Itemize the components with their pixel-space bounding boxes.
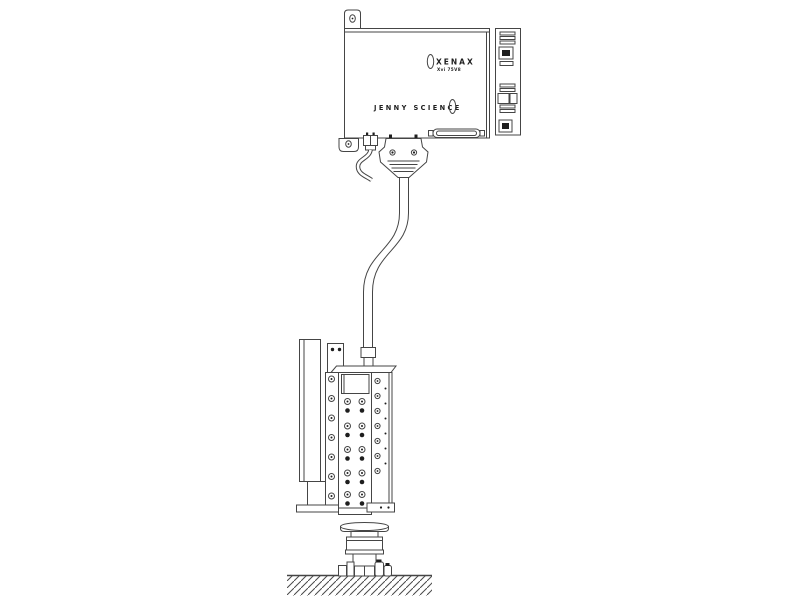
bracket-screw [380,506,382,508]
estop-terminal-cap [386,563,390,566]
estop-terminal [375,562,384,576]
actuator-side-face [372,373,393,506]
carriage [339,373,372,515]
servo-controller: XENAX Xvi 75V8 JENNY SCIENCE [339,10,521,180]
slide-rail [326,373,339,506]
brand-logo-mark-icon [449,100,455,114]
linear-actuator [297,340,397,515]
technical-diagram: XENAX Xvi 75V8 JENNY SCIENCE [0,0,806,605]
clamp-screw [331,348,334,351]
dsub-screw-center [391,151,393,153]
dsub-port-tab [480,131,485,137]
controller-housing [345,29,490,139]
slide-rail-body [326,373,339,506]
motor-cable [361,176,409,368]
cable-right-edge [373,176,409,348]
estop-neck [351,532,378,538]
io-connector-panel [496,29,521,136]
dsub-port [429,129,485,138]
dsub-thumbscrew-pin [389,135,392,139]
aux-connector [358,133,378,181]
cable-ferrule [361,348,376,358]
estop-terminal [347,562,354,576]
dsub-plug [379,135,428,178]
ground-hatch [287,576,432,596]
back-mount-plate [300,340,321,482]
clamp-screw [338,348,341,351]
actuator-top-face [331,366,396,373]
mounting-hole-top-center [352,18,354,20]
dsub-screw-center [413,151,415,153]
ground-surface [287,576,432,596]
estop-cap [341,523,389,531]
estop-body [347,537,383,550]
estop-flange [346,550,384,554]
io-connector-slot [502,50,510,56]
estop-stem [353,554,376,566]
dsub-port-tab [429,131,434,137]
bracket-screw [387,506,389,508]
io-connector-slot [502,123,509,129]
controller-model-label: Xvi 75V8 [437,67,461,72]
dsub-port-shell [433,129,480,138]
aux-connector-nut [366,146,376,151]
xenax-logo-text: XENAX [436,58,475,67]
estop-terminal [384,566,392,577]
estop-terminal-cap [377,560,382,563]
emergency-stop-button [339,523,392,577]
brand-label: JENNY SCIENCE [373,104,462,112]
mounting-hole-bottom-center [348,143,350,145]
estop-terminal [339,566,347,577]
bottom-bracket [367,503,395,512]
diagram-canvas: XENAX Xvi 75V8 JENNY SCIENCE [0,0,806,605]
dsub-thumbscrew-pin [415,135,418,139]
